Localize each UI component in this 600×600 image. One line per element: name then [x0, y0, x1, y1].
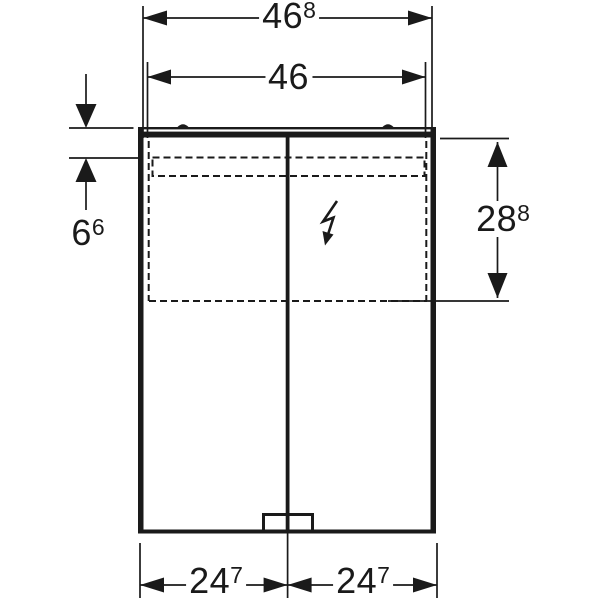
arrow-right-icon [402, 70, 426, 85]
dim-superscript: 8 [517, 200, 530, 226]
dim-top-section-height [69, 74, 139, 210]
lightning-bolt-arrowhead [323, 231, 334, 246]
dim-value: 46 [268, 56, 309, 97]
dim-value: 24 [189, 560, 230, 600]
dim-value: 6 [71, 212, 92, 253]
lightning-bolt-stroke [323, 201, 337, 236]
arrow-down-icon [76, 104, 97, 128]
dim-superscript: 7 [230, 562, 243, 588]
arrow-left-icon [140, 578, 164, 593]
dim-right-section-height-label: 288 [473, 201, 533, 237]
arrow-up-icon [76, 158, 97, 182]
dim-value: 28 [476, 198, 517, 239]
dim-value: 46 [262, 0, 303, 36]
dim-value: 24 [336, 560, 377, 600]
arrow-right-icon [408, 11, 432, 26]
dim-left-door-width-label: 247 [186, 563, 246, 599]
arrow-left-icon [143, 11, 167, 26]
dim-overall-width-label: 468 [259, 0, 319, 34]
cabinet-outline [138, 124, 436, 533]
dim-superscript: 6 [92, 214, 105, 240]
hinge-bump-left [178, 124, 189, 127]
arrow-left-icon [148, 70, 172, 85]
arrow-up-icon [488, 142, 508, 167]
bottom-edge [138, 530, 436, 534]
right-wall [431, 127, 437, 534]
arrow-down-icon [488, 273, 508, 298]
lightning-bolt-icon [323, 201, 338, 246]
arrow-right-icon [413, 578, 437, 593]
technical-drawing-canvas: 468 46 66 288 247 247 [0, 0, 600, 600]
hinge-bump-right [383, 124, 394, 127]
dim-superscript: 8 [303, 0, 316, 23]
arrow-right-icon [264, 578, 288, 593]
dim-superscript: 7 [377, 562, 390, 588]
dim-right-door-width-label: 247 [333, 563, 393, 599]
top-panel [138, 127, 436, 138]
dim-top-section-height-label: 66 [68, 215, 107, 251]
arrow-left-icon [288, 578, 312, 593]
dim-inner-width-label: 46 [265, 59, 312, 95]
top-panel-inner-line [141, 129, 433, 131]
door-divider [286, 137, 290, 533]
left-wall [138, 127, 144, 534]
